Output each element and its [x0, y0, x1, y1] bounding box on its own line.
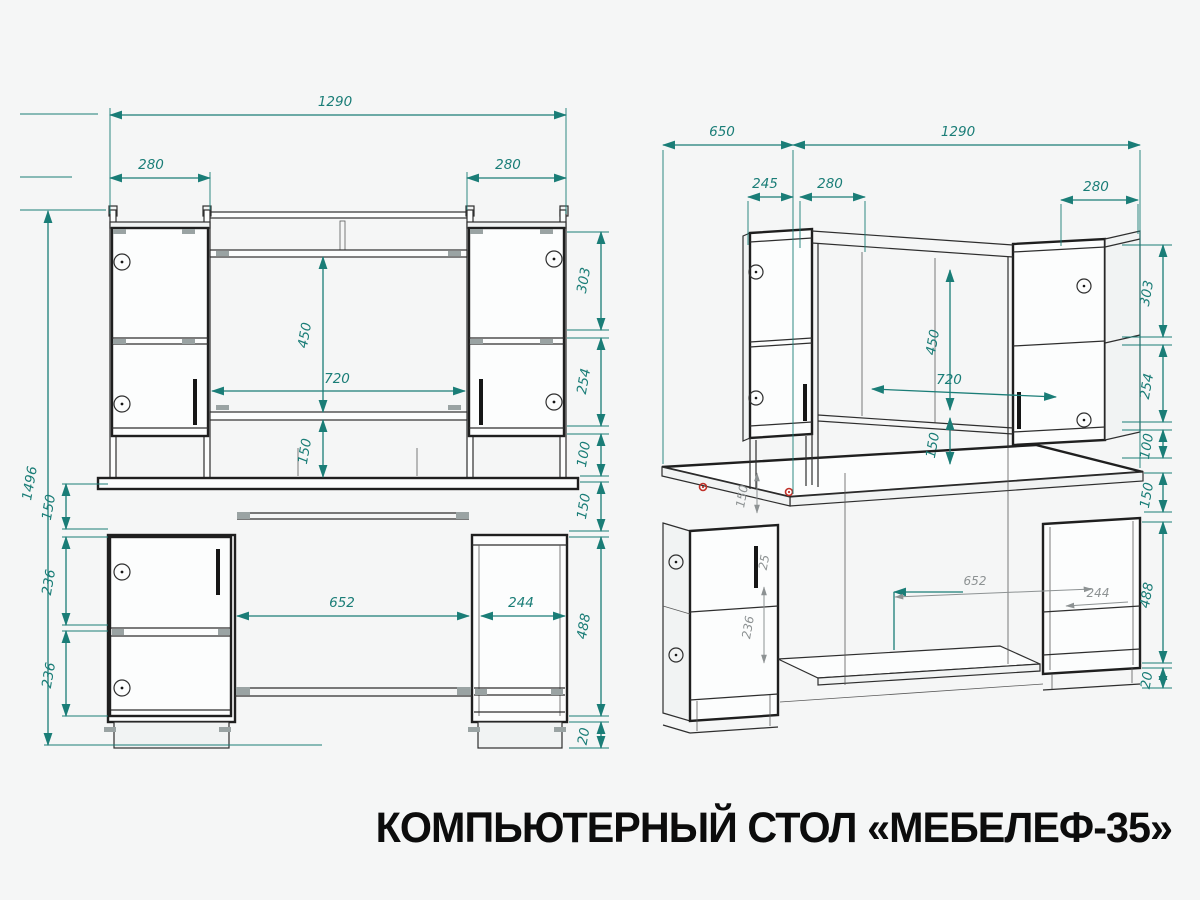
dim-persp-20: 20 [1138, 670, 1157, 690]
dim-persp-245: 245 [752, 176, 778, 192]
persp-right-hutch [1013, 231, 1140, 445]
dim-persp-150-apron: 150 [733, 483, 751, 508]
dim-front-244: 244 [508, 595, 534, 611]
door-handle [1017, 392, 1021, 429]
dim-front-280-left: 280 [138, 157, 164, 173]
persp-left-hutch [743, 229, 812, 489]
dim-persp-650: 650 [709, 124, 735, 140]
dim-front-apron-150: 150 [39, 493, 59, 521]
dim-persp-720: 720 [936, 372, 962, 388]
door-handle [803, 384, 807, 421]
dim-persp-488: 488 [1137, 581, 1157, 609]
dim-front-450: 450 [295, 321, 315, 349]
dim-persp-25: 25 [756, 554, 772, 571]
dim-persp-652: 652 [964, 574, 987, 588]
dim-front-303: 303 [574, 266, 594, 294]
front-desktop [98, 478, 578, 519]
dim-persp-150-right: 150 [1137, 481, 1157, 509]
dim-persp-254: 254 [1137, 372, 1157, 400]
front-hutch-structure [109, 206, 568, 478]
dim-persp-1290: 1290 [941, 124, 975, 140]
dim-front-150-niche: 150 [295, 437, 315, 465]
dim-persp-450: 450 [923, 328, 943, 356]
front-left-pedestal [104, 535, 235, 748]
dim-front-20: 20 [575, 726, 594, 746]
front-back-rail [235, 687, 472, 696]
dim-front-1496: 1496 [19, 465, 41, 502]
door-handle [479, 379, 483, 425]
door-handle [193, 379, 197, 425]
dim-persp-303: 303 [1137, 279, 1157, 307]
dim-front-254: 254 [574, 367, 594, 395]
dim-front-1290: 1290 [318, 94, 352, 110]
product-title: КОМПЬЮТЕРНЫЙ СТОЛ «МЕБЕЛЕФ-35» [47, 804, 1172, 853]
dim-persp-280-left: 280 [817, 176, 843, 192]
dim-front-236-upper: 236 [39, 568, 59, 596]
dim-persp-244: 244 [1087, 586, 1110, 600]
dim-front-720: 720 [324, 371, 350, 387]
front-right-pedestal [468, 535, 567, 748]
dim-front-280-right: 280 [495, 157, 521, 173]
dim-persp-280-right: 280 [1083, 179, 1109, 195]
dim-front-652: 652 [329, 595, 355, 611]
dim-persp-100: 100 [1137, 432, 1157, 460]
front-view: 1290 280 280 1496 150 236 236 [19, 94, 609, 748]
blueprint-canvas: 1290 280 280 1496 150 236 236 [0, 0, 1200, 900]
dim-front-100: 100 [574, 440, 594, 468]
dim-front-236-lower: 236 [39, 661, 59, 689]
dim-front-488: 488 [574, 612, 594, 640]
technical-drawing: 1290 280 280 1496 150 236 236 [0, 0, 1200, 800]
door-handle [216, 549, 220, 595]
perspective-view: 650 1290 245 280 280 [662, 124, 1172, 733]
dim-front-150-right: 150 [574, 492, 594, 520]
